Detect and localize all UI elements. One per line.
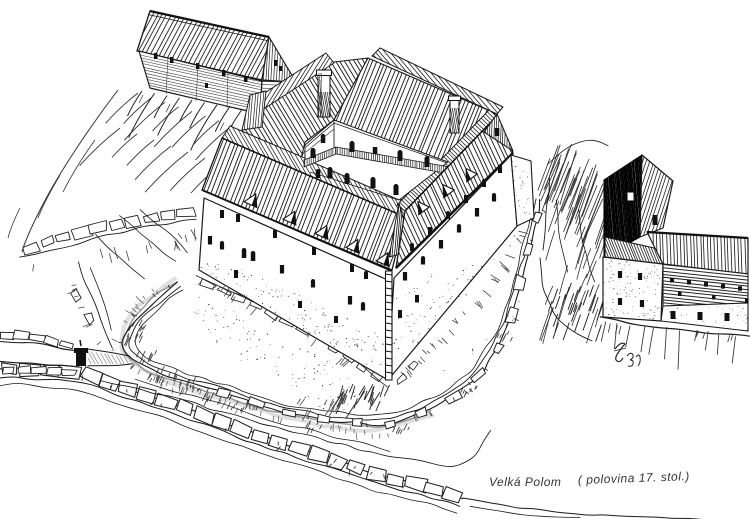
svg-text:Velká Polom: Velká Polom [489,475,561,489]
